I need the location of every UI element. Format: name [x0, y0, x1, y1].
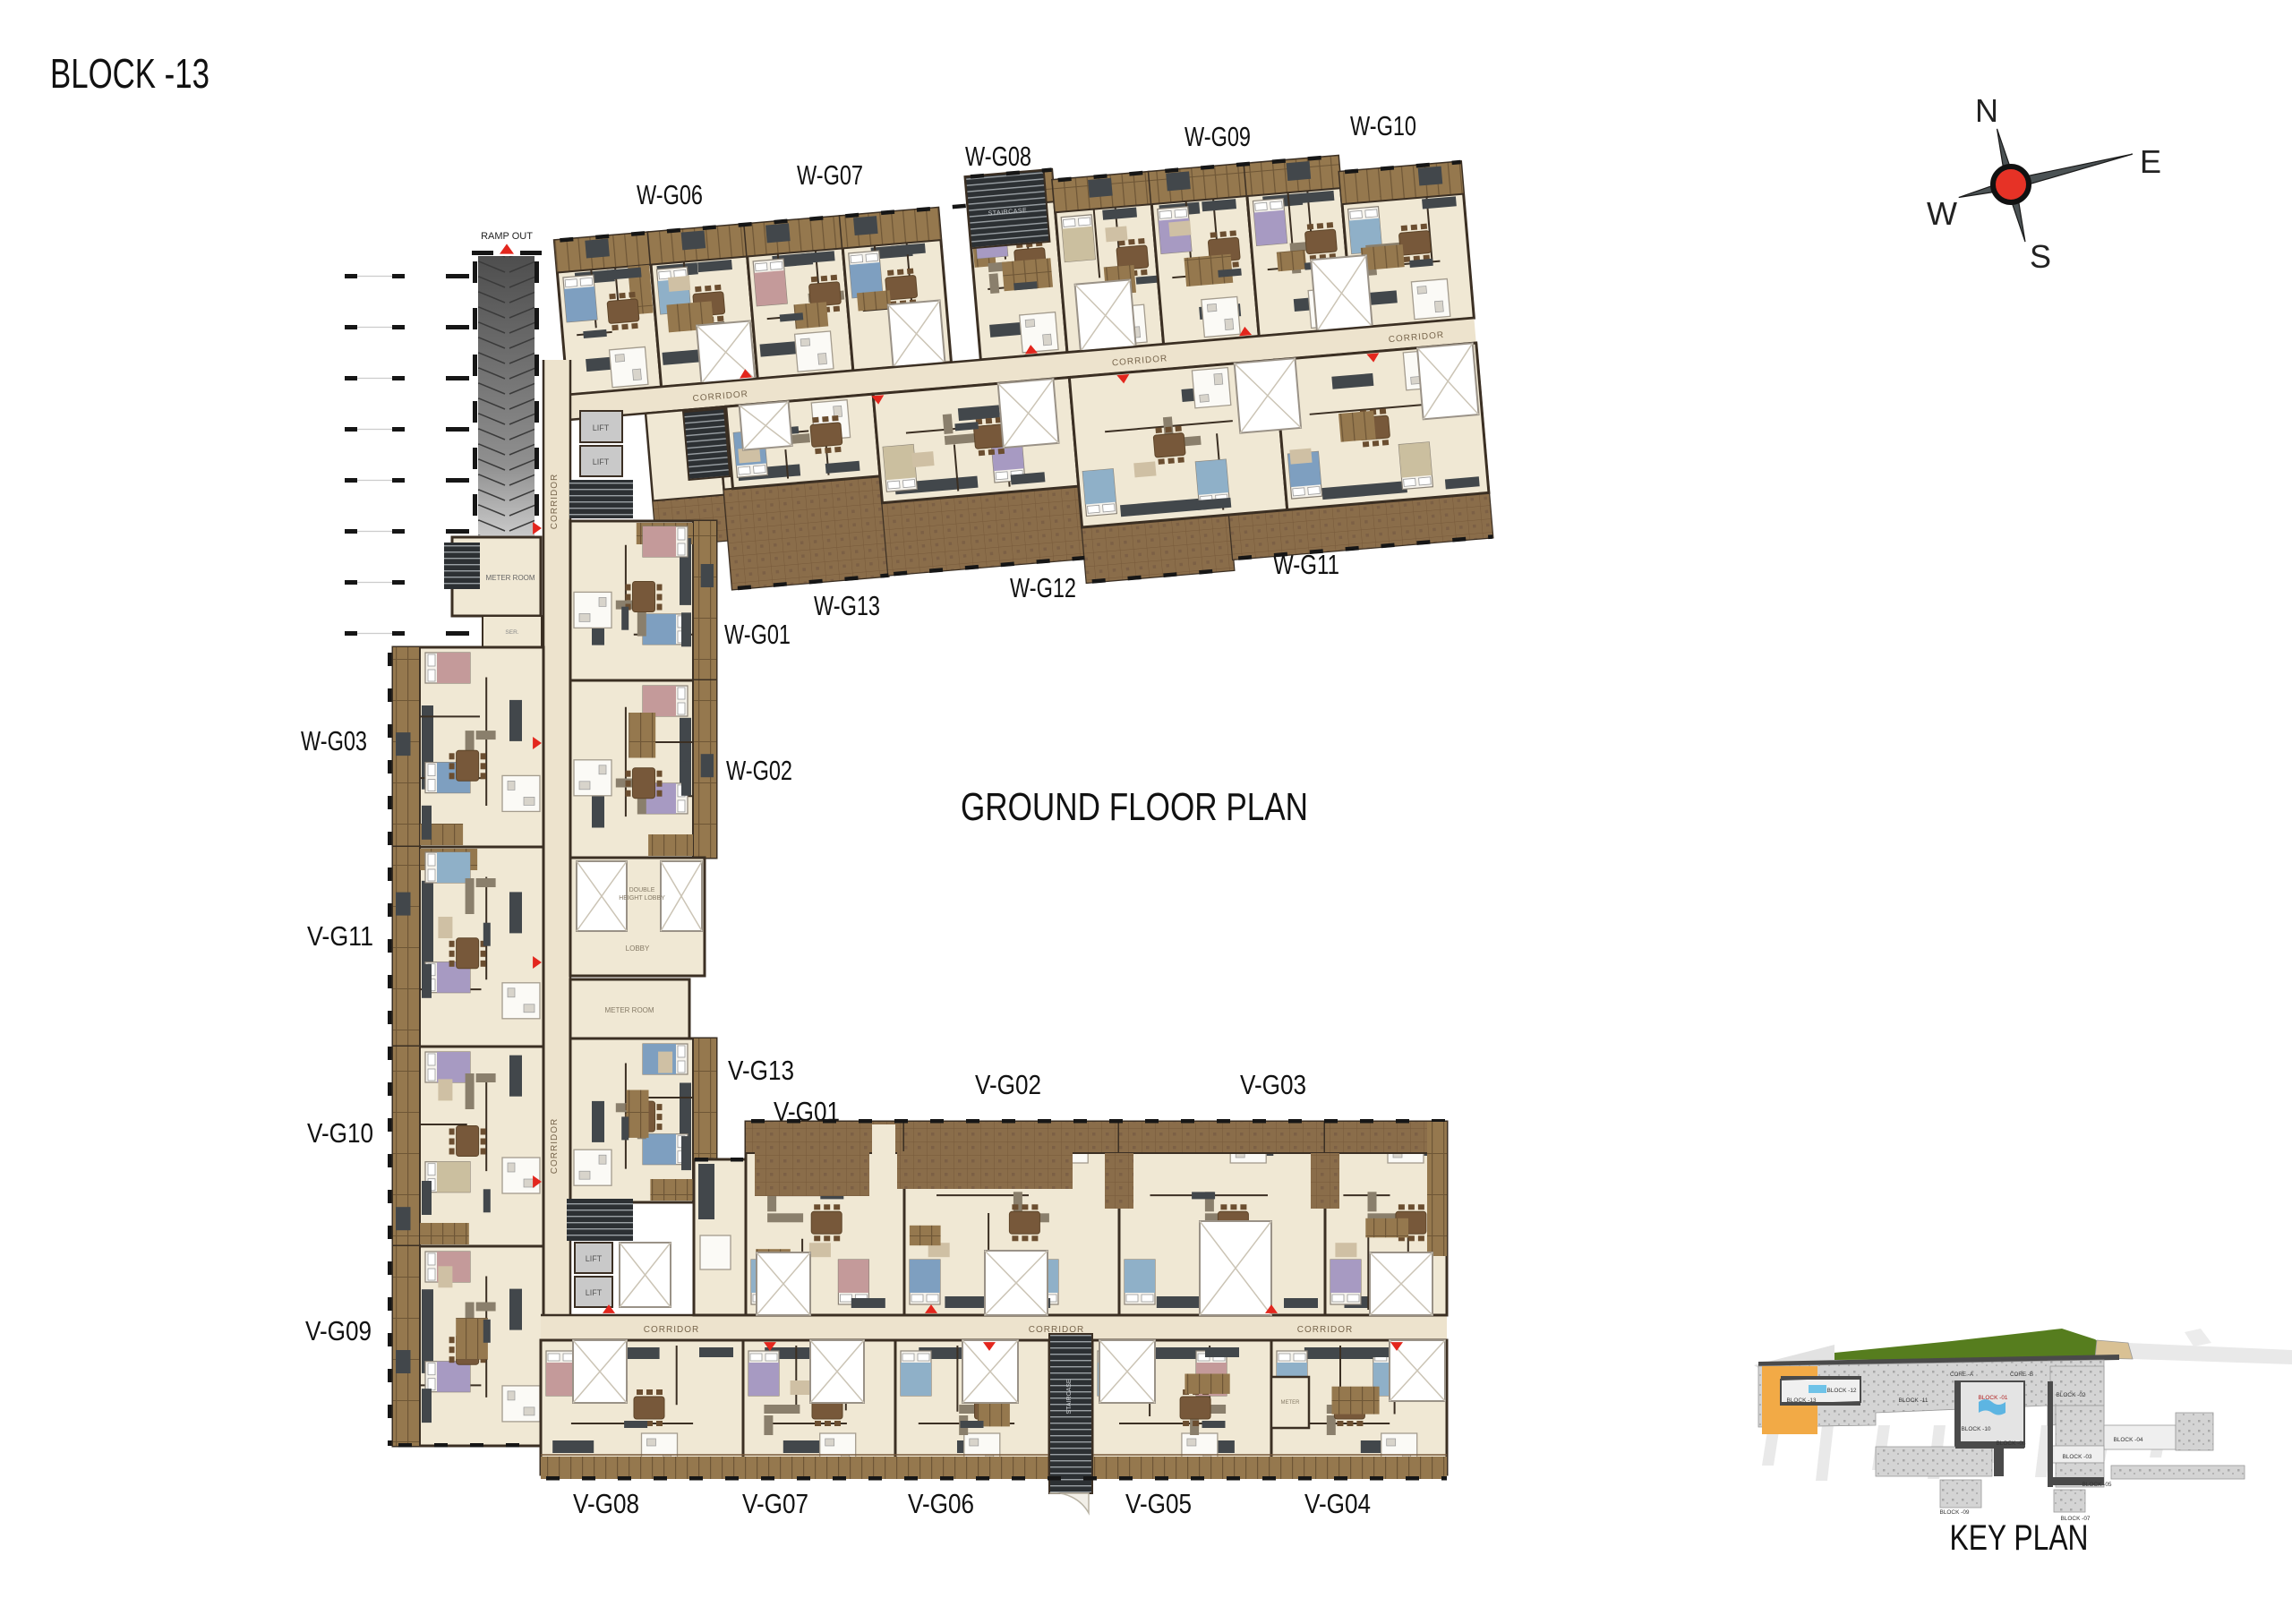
svg-text:BLOCK -05: BLOCK -05	[2082, 1482, 2113, 1488]
svg-text:W-G08: W-G08	[965, 141, 1031, 172]
svg-text:METER ROOM: METER ROOM	[604, 1006, 654, 1014]
svg-text:V-G11: V-G11	[307, 920, 373, 952]
svg-text:W-G02: W-G02	[726, 755, 792, 786]
svg-text:STAIRCASE: STAIRCASE	[1066, 1379, 1073, 1414]
svg-text:V-G05: V-G05	[1125, 1488, 1192, 1519]
svg-text:BLOCK -09: BLOCK -09	[1940, 1509, 1971, 1516]
svg-text:V-G06: V-G06	[908, 1488, 974, 1519]
svg-text:BLOCK -03: BLOCK -03	[2063, 1454, 2093, 1460]
svg-text:CORE -B: CORE -B	[2010, 1372, 2033, 1378]
svg-text:LIFT: LIFT	[586, 1254, 603, 1263]
svg-text:HEIGHT LOBBY: HEIGHT LOBBY	[619, 895, 665, 902]
svg-text:BLOCK -10: BLOCK -10	[1962, 1426, 1992, 1432]
svg-text:W-G09: W-G09	[1184, 121, 1251, 152]
svg-text:W-G07: W-G07	[797, 159, 863, 191]
svg-text:S: S	[2030, 238, 2051, 275]
svg-text:LIFT: LIFT	[593, 423, 610, 432]
svg-text:W-G06: W-G06	[637, 179, 703, 210]
svg-text:V-G04: V-G04	[1304, 1488, 1371, 1519]
svg-text:GROUND FLOOR PLAN: GROUND FLOOR PLAN	[961, 785, 1308, 829]
svg-text:BLOCK -08: BLOCK -08	[1997, 1440, 2027, 1447]
svg-text:V-G10: V-G10	[307, 1117, 373, 1149]
svg-text:W-G03: W-G03	[301, 725, 367, 756]
svg-text:W-G13: W-G13	[814, 590, 880, 621]
svg-text:CORE -A: CORE -A	[1950, 1372, 1974, 1378]
svg-text:BLOCK -11: BLOCK -11	[1899, 1397, 1929, 1404]
svg-text:LIFT: LIFT	[593, 457, 610, 466]
svg-text:BLOCK -04: BLOCK -04	[2114, 1437, 2144, 1443]
svg-text:DOUBLE: DOUBLE	[629, 887, 655, 893]
svg-text:V-G13: V-G13	[728, 1055, 794, 1086]
svg-text:LIFT: LIFT	[586, 1288, 603, 1297]
svg-text:V-G09: V-G09	[305, 1315, 372, 1346]
svg-text:SER.: SER.	[505, 629, 518, 636]
svg-text:BLOCK -01: BLOCK -01	[1979, 1395, 2009, 1401]
svg-text:V-G08: V-G08	[573, 1488, 639, 1519]
svg-text:V-G07: V-G07	[742, 1488, 808, 1519]
svg-text:BLOCK -02: BLOCK -02	[2057, 1392, 2087, 1398]
svg-text:LOBBY: LOBBY	[626, 944, 650, 953]
svg-text:E: E	[2140, 143, 2161, 180]
svg-text:CORRIDOR: CORRIDOR	[644, 1325, 699, 1335]
svg-text:CORRIDOR: CORRIDOR	[1297, 1325, 1353, 1335]
svg-text:BLOCK -12: BLOCK -12	[1827, 1388, 1858, 1394]
svg-text:V-G02: V-G02	[975, 1069, 1041, 1100]
svg-text:METER ROOM: METER ROOM	[485, 574, 535, 582]
svg-text:N: N	[1975, 92, 1998, 129]
svg-text:METER: METER	[1281, 1400, 1301, 1406]
svg-text:W-G01: W-G01	[724, 619, 791, 650]
svg-text:W: W	[1927, 195, 1957, 232]
svg-text:W-G10: W-G10	[1350, 110, 1416, 141]
svg-text:W-G12: W-G12	[1010, 572, 1076, 603]
svg-text:BLOCK -13: BLOCK -13	[50, 50, 210, 97]
svg-text:BLOCK -13: BLOCK -13	[1787, 1397, 1817, 1404]
svg-text:V-G03: V-G03	[1240, 1069, 1306, 1100]
svg-text:KEY PLAN: KEY PLAN	[1950, 1518, 2089, 1558]
svg-text:CORRIDOR: CORRIDOR	[550, 474, 560, 529]
svg-text:RAMP OUT: RAMP OUT	[481, 231, 533, 242]
svg-text:CORRIDOR: CORRIDOR	[550, 1118, 560, 1174]
